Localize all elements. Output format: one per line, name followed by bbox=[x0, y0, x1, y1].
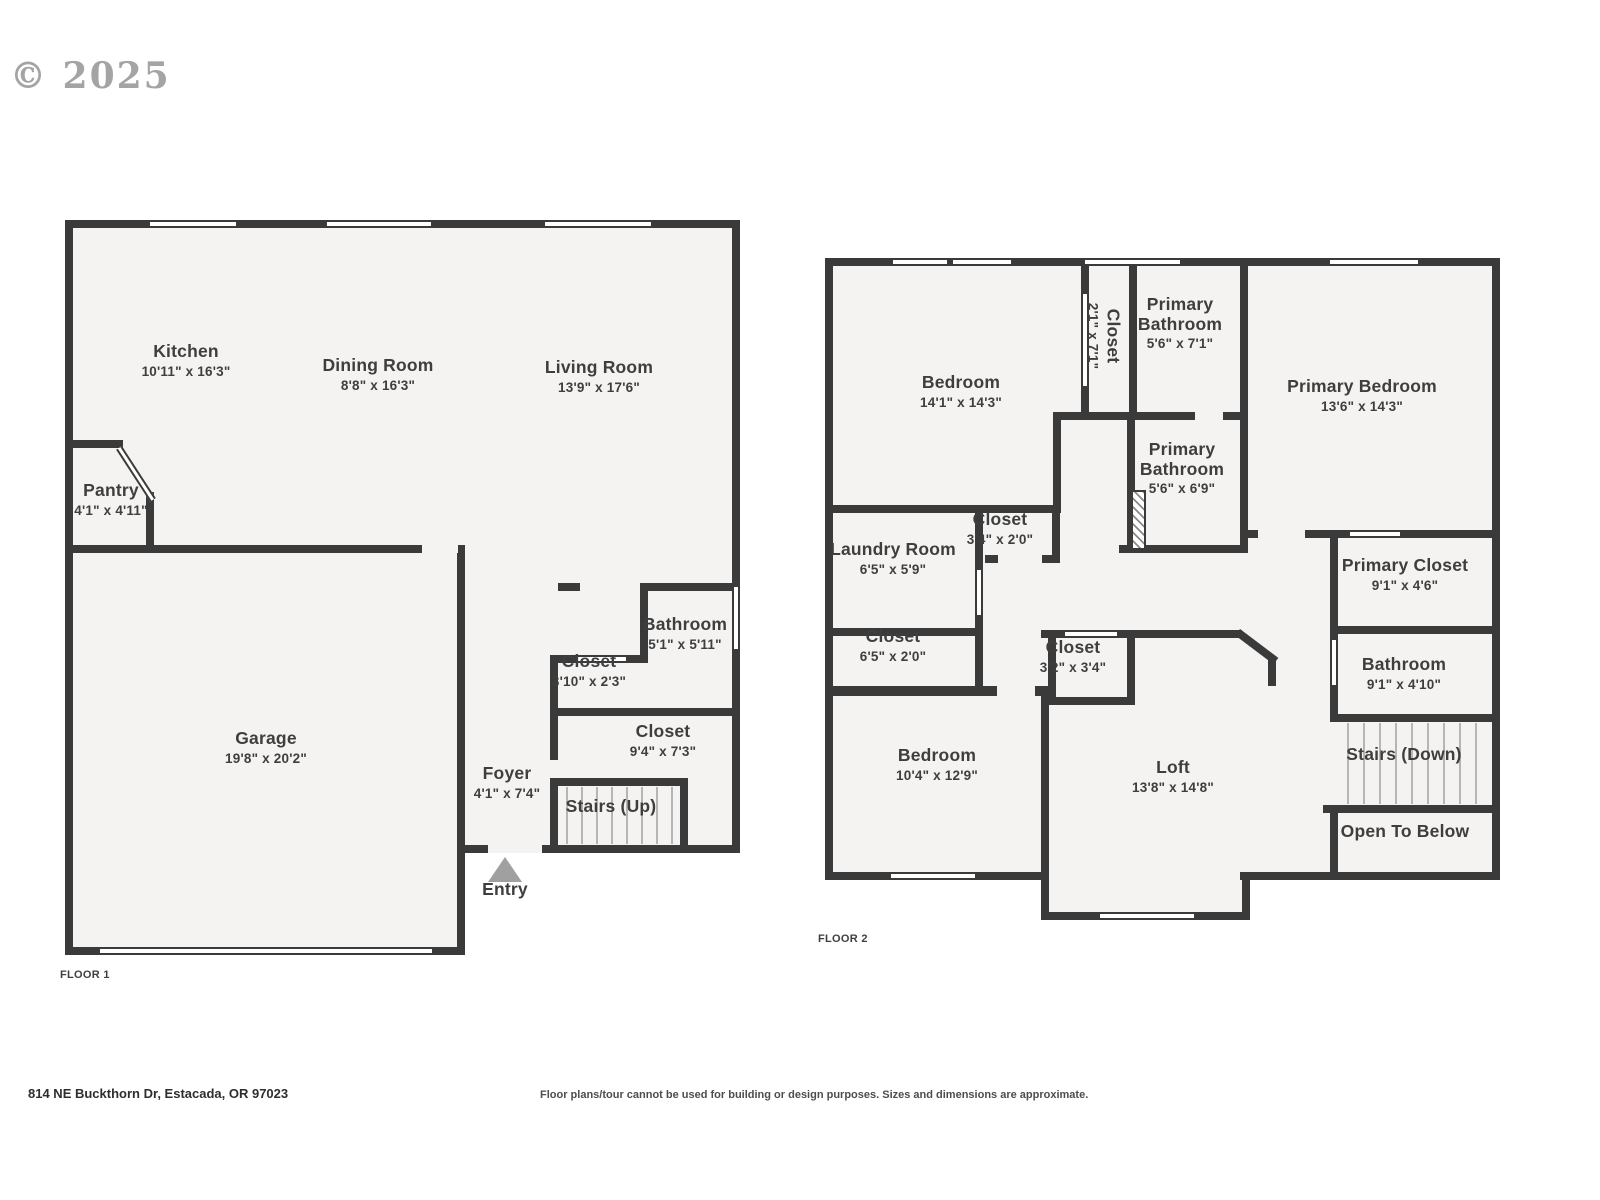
room-dims: 13'8" x 14'8" bbox=[1132, 780, 1214, 795]
room-name: Closet bbox=[552, 652, 626, 672]
entry-arrow-icon bbox=[488, 857, 522, 882]
room-dims: 5'6" x 6'9" bbox=[1123, 481, 1241, 496]
wall-segment bbox=[1323, 805, 1500, 813]
wall-segment bbox=[1117, 630, 1242, 638]
room-name: Primary Bedroom bbox=[1287, 377, 1437, 397]
room-name: Primary Bathroom bbox=[1121, 295, 1239, 334]
wall-segment bbox=[1240, 412, 1248, 553]
wall-segment bbox=[680, 778, 688, 853]
window bbox=[1085, 258, 1180, 266]
wall-segment bbox=[1248, 530, 1258, 538]
room-name: Primary Bathroom bbox=[1123, 440, 1241, 479]
window bbox=[150, 220, 236, 228]
room-label-foyer: Foyer 4'1" x 7'4" bbox=[474, 764, 540, 801]
wall-segment bbox=[457, 545, 465, 955]
window bbox=[545, 220, 651, 228]
room-label-laundry-room: Laundry Room 6'5" x 5'9" bbox=[830, 540, 956, 577]
room-name: Laundry Room bbox=[830, 540, 956, 560]
room-dims: 2'1" x 7'1" bbox=[1086, 303, 1101, 369]
room-dims: 3'4" x 2'0" bbox=[967, 532, 1033, 547]
room-name: Closet bbox=[1040, 638, 1106, 658]
room-name: Loft bbox=[1132, 758, 1214, 778]
room-dims: 4'1" x 7'4" bbox=[474, 786, 540, 801]
room-name: Garage bbox=[225, 729, 307, 749]
room-dims: 6'5" x 5'9" bbox=[830, 562, 956, 577]
room-name: Bedroom bbox=[896, 746, 978, 766]
wall-segment bbox=[1127, 630, 1135, 705]
room-name: Foyer bbox=[474, 764, 540, 784]
property-address: 814 NE Buckthorn Dr, Estacada, OR 97023 bbox=[28, 1086, 288, 1101]
room-dims: 4'1" x 4'11" bbox=[74, 503, 147, 518]
room-label-dining-room: Dining Room 8'8" x 16'3" bbox=[322, 356, 433, 393]
room-label-closet-stairs: Closet 9'4" x 7'3" bbox=[630, 722, 696, 759]
wall-segment bbox=[1240, 872, 1500, 880]
room-dims: 5'1" x 5'11" bbox=[643, 637, 727, 652]
wall-segment bbox=[1053, 412, 1061, 513]
wall-segment bbox=[1052, 513, 1060, 563]
room-label-pantry: Pantry 4'1" x 4'11" bbox=[74, 481, 147, 518]
room-name: Stairs (Down) bbox=[1346, 745, 1461, 765]
room-label-closet-hall-f2: Closet 6'5" x 2'0" bbox=[860, 627, 926, 664]
room-name: Living Room bbox=[545, 358, 653, 378]
stair-tread bbox=[671, 787, 673, 844]
wall-segment bbox=[1330, 714, 1500, 722]
room-name: Bedroom bbox=[920, 373, 1002, 393]
room-name: Primary Closet bbox=[1342, 556, 1468, 576]
room-label-entry: Entry bbox=[482, 880, 528, 900]
floor-plan-canvas: © 2025 Kitchen 10'11" x 16'3" Dining Roo… bbox=[0, 0, 1600, 1200]
room-label-bedroom-bottom: Bedroom 10'4" x 12'9" bbox=[896, 746, 978, 783]
room-name: Open To Below bbox=[1341, 822, 1470, 842]
window bbox=[1350, 530, 1400, 538]
wall-segment bbox=[640, 583, 740, 591]
wall-segment bbox=[825, 686, 997, 696]
window bbox=[732, 587, 740, 649]
window bbox=[1330, 258, 1418, 266]
hatched-pocket-door bbox=[1131, 490, 1146, 550]
wall-segment bbox=[1330, 813, 1338, 880]
room-label-primary-bathroom-2: Primary Bathroom 5'6" x 6'9" bbox=[1123, 440, 1241, 496]
wall-segment bbox=[732, 220, 740, 853]
room-dims: 9'4" x 7'3" bbox=[630, 744, 696, 759]
wall-segment bbox=[1330, 530, 1338, 640]
room-dims: 3'2" x 3'4" bbox=[1040, 660, 1106, 675]
room-dims: 13'6" x 14'3" bbox=[1287, 399, 1437, 414]
room-dims: 13'9" x 17'6" bbox=[545, 380, 653, 395]
room-dims: 14'1" x 14'3" bbox=[920, 395, 1002, 410]
window-divider bbox=[947, 258, 953, 266]
room-name: Bathroom bbox=[643, 615, 727, 635]
room-dims: 6'5" x 2'0" bbox=[860, 649, 926, 664]
room-label-living-room: Living Room 13'9" x 17'6" bbox=[545, 358, 653, 395]
room-label-closet-laundry: Closet 3'4" x 2'0" bbox=[967, 510, 1033, 547]
wall-segment bbox=[1048, 697, 1135, 705]
room-dims: 9'1" x 4'10" bbox=[1362, 677, 1446, 692]
wall-segment bbox=[1492, 258, 1500, 880]
room-label-primary-bathroom-1: Primary Bathroom 5'6" x 7'1" bbox=[1121, 295, 1239, 351]
window bbox=[891, 872, 975, 880]
room-label-bathroom-f2: Bathroom 9'1" x 4'10" bbox=[1362, 655, 1446, 692]
room-dims: 9'1" x 4'6" bbox=[1342, 578, 1468, 593]
room-dims: 10'4" x 12'9" bbox=[896, 768, 978, 783]
room-name: Closet bbox=[630, 722, 696, 742]
room-dims: 19'8" x 20'2" bbox=[225, 751, 307, 766]
wall-segment bbox=[1242, 872, 1250, 920]
wall-segment bbox=[558, 583, 580, 591]
wall-segment bbox=[65, 220, 73, 955]
room-label-open-to-below: Open To Below bbox=[1341, 822, 1470, 842]
room-dims: 5'6" x 7'1" bbox=[1121, 336, 1239, 351]
wall-segment bbox=[975, 636, 983, 686]
room-name: Dining Room bbox=[322, 356, 433, 376]
room-label-closet-hall-f1: Closet 3'10" x 2'3" bbox=[552, 652, 626, 689]
room-name: Pantry bbox=[74, 481, 147, 501]
room-name: Stairs (Up) bbox=[566, 797, 657, 817]
room-dims: 3'10" x 2'3" bbox=[552, 674, 626, 689]
wall-segment bbox=[1330, 626, 1500, 634]
wall-segment bbox=[550, 708, 740, 716]
room-label-stairs-up: Stairs (Up) bbox=[566, 797, 657, 817]
floor2-tag: FLOOR 2 bbox=[818, 933, 868, 945]
room-label-closet-tall: Closet 2'1" x 7'1" bbox=[1086, 303, 1123, 369]
room-name: Kitchen bbox=[142, 342, 231, 362]
disclaimer-text: Floor plans/tour cannot be used for buil… bbox=[540, 1089, 1088, 1101]
room-name: Closet bbox=[860, 627, 926, 647]
wall-segment bbox=[1053, 412, 1195, 420]
room-name: Closet bbox=[967, 510, 1033, 530]
room-name: Bathroom bbox=[1362, 655, 1446, 675]
room-label-bedroom-top: Bedroom 14'1" x 14'3" bbox=[920, 373, 1002, 410]
wall-segment bbox=[65, 440, 123, 448]
room-label-primary-bedroom: Primary Bedroom 13'6" x 14'3" bbox=[1287, 377, 1437, 414]
room-label-garage: Garage 19'8" x 20'2" bbox=[225, 729, 307, 766]
room-label-closet-loft: Closet 3'2" x 3'4" bbox=[1040, 638, 1106, 675]
room-label-stairs-down: Stairs (Down) bbox=[1346, 745, 1461, 765]
door-opening bbox=[488, 845, 542, 853]
wall-segment bbox=[550, 778, 688, 786]
floor1-tag: FLOOR 1 bbox=[60, 969, 110, 981]
wall-segment bbox=[1305, 530, 1350, 538]
wall-segment bbox=[1041, 686, 1049, 920]
room-label-primary-closet: Primary Closet 9'1" x 4'6" bbox=[1342, 556, 1468, 593]
room-label-loft: Loft 13'8" x 14'8" bbox=[1132, 758, 1214, 795]
room-name: Closet bbox=[1103, 303, 1123, 369]
window bbox=[100, 947, 432, 955]
window bbox=[975, 570, 983, 615]
wall-segment bbox=[626, 655, 648, 663]
wall-segment bbox=[550, 778, 558, 853]
wall-segment bbox=[1400, 530, 1492, 538]
window bbox=[1330, 640, 1338, 685]
copyright-watermark: © 2025 bbox=[10, 55, 171, 97]
window bbox=[327, 220, 431, 228]
wall-segment bbox=[1240, 258, 1248, 420]
room-dims: 10'11" x 16'3" bbox=[142, 364, 231, 379]
room-dims: 8'8" x 16'3" bbox=[322, 378, 433, 393]
stair-tread bbox=[1475, 723, 1477, 804]
wall-segment bbox=[65, 545, 465, 553]
wall-segment bbox=[985, 555, 998, 563]
window bbox=[1100, 912, 1194, 920]
door-opening bbox=[422, 545, 458, 553]
room-name: Entry bbox=[482, 880, 528, 900]
room-label-kitchen: Kitchen 10'11" x 16'3" bbox=[142, 342, 231, 379]
room-label-bathroom-f1: Bathroom 5'1" x 5'11" bbox=[643, 615, 727, 652]
